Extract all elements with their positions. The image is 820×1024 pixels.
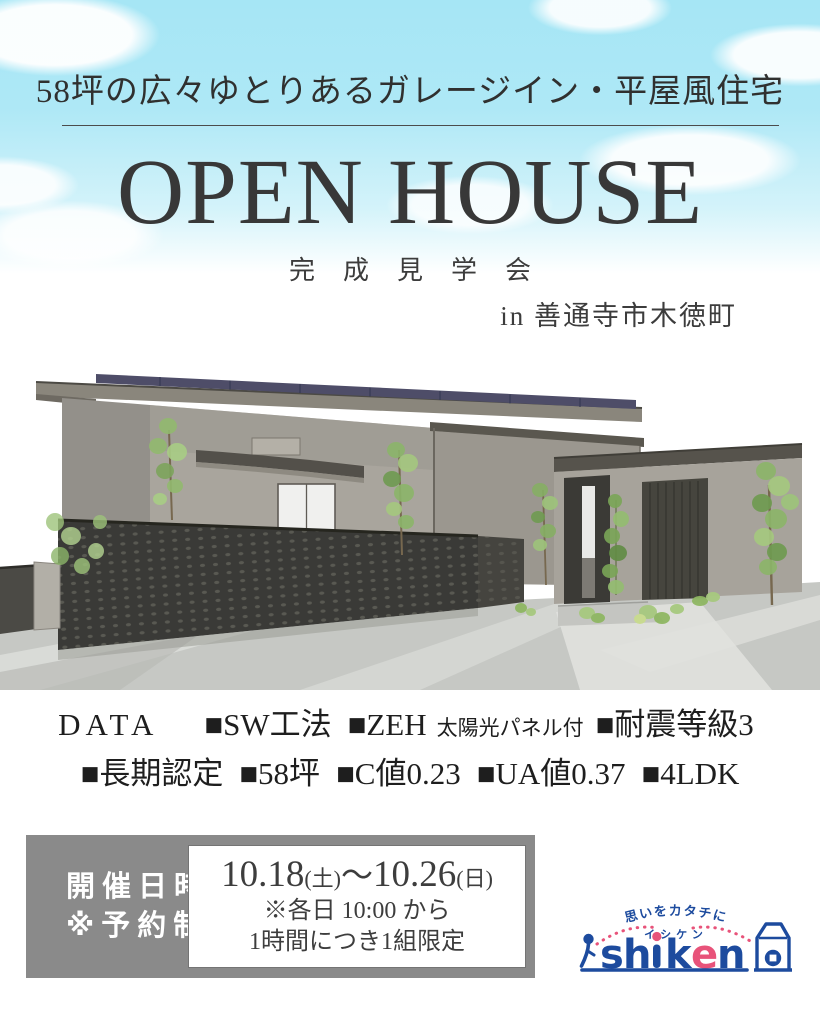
spec-item: ■4LDK: [641, 756, 739, 791]
data-label: DATA: [58, 707, 158, 742]
schedule-note-time: ※各日 10:00 から: [264, 896, 451, 927]
ishiken-logo: 思いをカタチに イシケン s h k e n: [575, 878, 815, 1010]
date-end-day: (日): [456, 866, 493, 891]
date-range: 10.18(土)～10.26(日): [221, 855, 493, 896]
data-section: DATA■SW工法■ZEH太陽光パネル付■耐震等級3 ■長期認定■58坪■C値0…: [0, 702, 820, 797]
person-icon: [582, 934, 595, 966]
openhouse-flyer: 58坪の広々ゆとりあるガレージイン・平屋風住宅 OPEN HOUSE 完成見学会…: [0, 0, 820, 1024]
schedule-label-reservation: ※予約制: [66, 912, 188, 941]
date-end: 10.26: [373, 854, 456, 895]
schedule-box: 開催日時 ※予約制 10.18(土)～10.26(日) ※各日 10:00 から…: [26, 835, 535, 978]
logo-tagline-text: 思いをカタチに: [623, 903, 729, 925]
spec-item: ■ZEH: [348, 707, 427, 742]
spec-item: ■C値0.23: [336, 756, 461, 791]
spec-note: 太陽光パネル付: [437, 716, 584, 740]
headline: 58坪の広々ゆとりあるガレージイン・平屋風住宅: [0, 64, 820, 112]
headline-rule: [62, 125, 779, 126]
schedule-label: 開催日時 ※予約制: [26, 835, 188, 978]
schedule-details: 10.18(土)～10.26(日) ※各日 10:00 から 1時間につき1組限…: [188, 845, 526, 968]
date-start: 10.18: [221, 854, 304, 895]
house-rendering: [0, 350, 820, 690]
spec-item: ■58坪: [239, 756, 320, 791]
tilde: ～: [341, 857, 373, 893]
schedule-note-limit: 1時間につき1組限定: [249, 927, 465, 958]
page-title: OPEN HOUSE: [0, 142, 820, 244]
logo-letter-i: [652, 932, 661, 968]
gate-and-side-wall: [0, 562, 60, 634]
spec-item: ■SW工法: [204, 707, 331, 742]
house-illustration: [0, 350, 820, 690]
specs-line-2: ■長期認定■58坪■C値0.23■UA値0.37■4LDK: [0, 751, 820, 797]
subtitle: 完成見学会: [0, 250, 820, 287]
logo-house-icon: [754, 924, 792, 970]
schedule-label-title: 開催日時: [66, 873, 188, 902]
date-start-day: (土): [304, 866, 341, 891]
flyer-header: 58坪の広々ゆとりあるガレージイン・平屋風住宅 OPEN HOUSE 完成見学会…: [0, 0, 820, 360]
specs-line-1: DATA■SW工法■ZEH太陽光パネル付■耐震等級3: [0, 702, 820, 751]
spec-item: ■耐震等級3: [596, 707, 754, 742]
spec-item: ■UA値0.37: [477, 756, 626, 791]
location-text: in 善通寺市木徳町: [0, 294, 820, 333]
company-logo: 思いをカタチに イシケン s h k e n: [575, 878, 815, 1010]
spec-item: ■長期認定: [81, 756, 224, 791]
